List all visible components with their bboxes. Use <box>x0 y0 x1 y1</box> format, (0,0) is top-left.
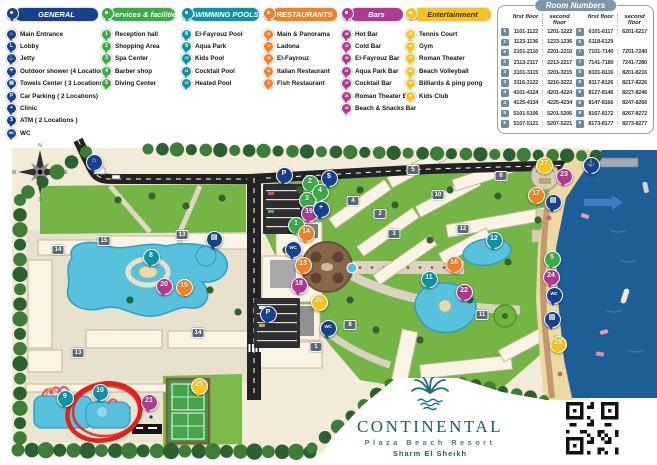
palm-logo-icon <box>410 377 450 411</box>
second-floor-range: 7201-7240 <box>617 49 651 55</box>
el-fayrouz-pool <box>67 242 227 316</box>
first-floor-range: 6101-6117 <box>585 29 618 35</box>
room-range-row: 1 1123-1136 1223-12366 6118-6129 <box>501 37 653 47</box>
first-floor-range: 8167-8172 <box>585 111 618 117</box>
room-range-row: 5 5101-5106 5201-52068 8167-8172 8267-82… <box>501 109 653 119</box>
first-floor-range: 4101-4124 <box>510 90 543 96</box>
resort-logo: CONTINENTAL Plaza Beach Resort Sharm El … <box>330 377 530 458</box>
first-floor-range: 8147-8166 <box>585 100 618 106</box>
second-floor-range: 6201-6217 <box>617 29 651 35</box>
building-number-badge: 2 <box>501 49 509 57</box>
first-floor-range: 1101-1122 <box>510 29 543 35</box>
second-floor-range: 2201-2210 <box>542 49 576 55</box>
first-floor-range: 5101-5106 <box>510 111 543 117</box>
second-floor-range: 8227-8246 <box>617 90 651 96</box>
room-numbers-table: Room Numbers first floorsecond floor fir… <box>497 5 654 134</box>
qr-code <box>566 402 619 455</box>
building-number-badge: 8 <box>576 100 584 108</box>
second-floor-range: 5201-5206 <box>542 111 576 117</box>
building-number-badge: 5 <box>501 110 509 118</box>
first-floor-range: 1123-1136 <box>510 39 543 45</box>
building-number-badge: 3 <box>501 79 509 87</box>
room-range-row: 2 2113-2117 2213-22177 7141-7180 7241-72… <box>501 58 653 68</box>
building-number-badge: 8 <box>576 120 584 128</box>
logo-location: Sharm El Sheikh <box>330 449 530 458</box>
first-floor-range: 3101-3115 <box>510 70 543 76</box>
building-number-badge: 7 <box>576 59 584 67</box>
second-floor-range: 3216-3222 <box>542 80 576 86</box>
first-floor-range: 4125-4134 <box>510 100 543 106</box>
second-floor-range: 4225-4234 <box>542 100 576 106</box>
kids-pool <box>86 399 130 428</box>
building-number-badge: 6 <box>576 28 584 36</box>
building-number-badge: 8 <box>576 89 584 97</box>
second-floor-range: 8201-8216 <box>617 70 651 76</box>
building-number-badge: 4 <box>501 100 509 108</box>
first-floor-range: 7101-7140 <box>585 49 618 55</box>
building-number-badge: 4 <box>501 89 509 97</box>
second-floor-range: 4201-4224 <box>542 90 576 96</box>
logo-name: CONTINENTAL <box>330 417 530 437</box>
room-range-row: 5 5107-5121 5207-52218 8173-8177 8273-82… <box>501 119 653 129</box>
room-range-row: 4 4125-4134 4225-42348 8147-8166 8247-82… <box>501 98 653 108</box>
building-number-badge: 2 <box>501 59 509 67</box>
building-number-badge: 1 <box>501 39 509 47</box>
building-number-badge: 7 <box>576 49 584 57</box>
resort-map-page: N E S W GENERAL⌂ Main EntranceL Lobby⚓ J… <box>0 0 657 465</box>
second-floor-range: 7241-7280 <box>617 60 651 66</box>
first-floor-range: 6118-6129 <box>585 39 618 45</box>
first-floor-range: 2113-2117 <box>510 60 543 66</box>
building-number-badge: 8 <box>576 69 584 77</box>
second-floor-range: 3201-3215 <box>542 70 576 76</box>
first-floor-range: 7141-7180 <box>585 60 618 66</box>
second-floor-range: 8273-8277 <box>617 121 651 127</box>
room-range-row: 1 1101-1122 1201-12226 6101-6117 6201-62… <box>501 27 653 37</box>
logo-subtitle: Plaza Beach Resort <box>330 438 530 447</box>
second-floor-range: 5207-5221 <box>542 121 576 127</box>
first-floor-range: 5107-5121 <box>510 121 543 127</box>
second-floor-range: 8217-8226 <box>617 80 651 86</box>
first-floor-range: 3116-3122 <box>510 80 543 86</box>
building-number-badge: 3 <box>501 69 509 77</box>
building-number-badge: 1 <box>501 28 509 36</box>
svg-text:W: W <box>12 170 17 176</box>
first-floor-range: 2101-2110 <box>510 49 543 55</box>
room-range-row: 2 2101-2110 2201-22107 7101-7140 7201-72… <box>501 47 653 57</box>
first-floor-range: 8173-8177 <box>585 121 618 127</box>
building-number-badge: 8 <box>576 79 584 87</box>
room-range-row: 4 4101-4124 4201-42248 8127-8146 8227-82… <box>501 88 653 98</box>
second-floor-range: 8267-8272 <box>617 111 651 117</box>
second-floor-range: 2213-2217 <box>542 60 576 66</box>
building-number-badge: 8 <box>576 110 584 118</box>
roman-theater <box>531 162 559 190</box>
second-floor-range: 8247-8266 <box>617 100 651 106</box>
first-floor-range: 8127-8146 <box>585 90 618 96</box>
second-floor-range: 1223-1236 <box>542 39 576 45</box>
room-range-row: 3 3101-3115 3201-32158 8101-8116 8201-82… <box>501 68 653 78</box>
room-numbers-title: Room Numbers <box>534 0 618 12</box>
first-floor-range: 8101-8116 <box>585 70 618 76</box>
svg-text:N: N <box>38 143 42 149</box>
second-floor-range: 1201-1222 <box>542 29 576 35</box>
room-table-headers: first floorsecond floor first floorsecon… <box>501 14 653 26</box>
tennis-court <box>167 379 209 443</box>
room-range-row: 3 3116-3122 3216-32228 8117-8126 8217-82… <box>501 78 653 88</box>
building-number-badge: 5 <box>501 120 509 128</box>
building-number-badge: 6 <box>576 39 584 47</box>
first-floor-range: 8117-8126 <box>585 80 618 86</box>
